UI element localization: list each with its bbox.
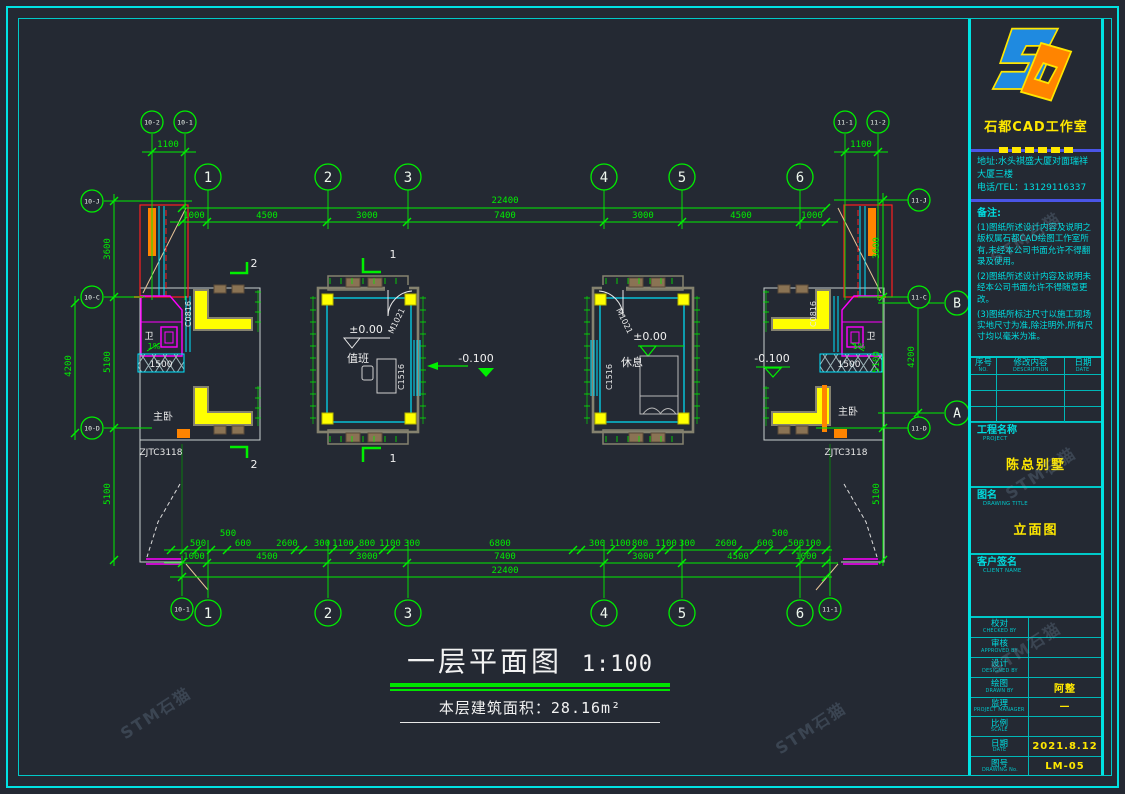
sheet-outer-border (6, 6, 1119, 788)
cad-sheet: 10-210-111-111-212345610-J10-C10-D11-J11… (0, 0, 1125, 794)
